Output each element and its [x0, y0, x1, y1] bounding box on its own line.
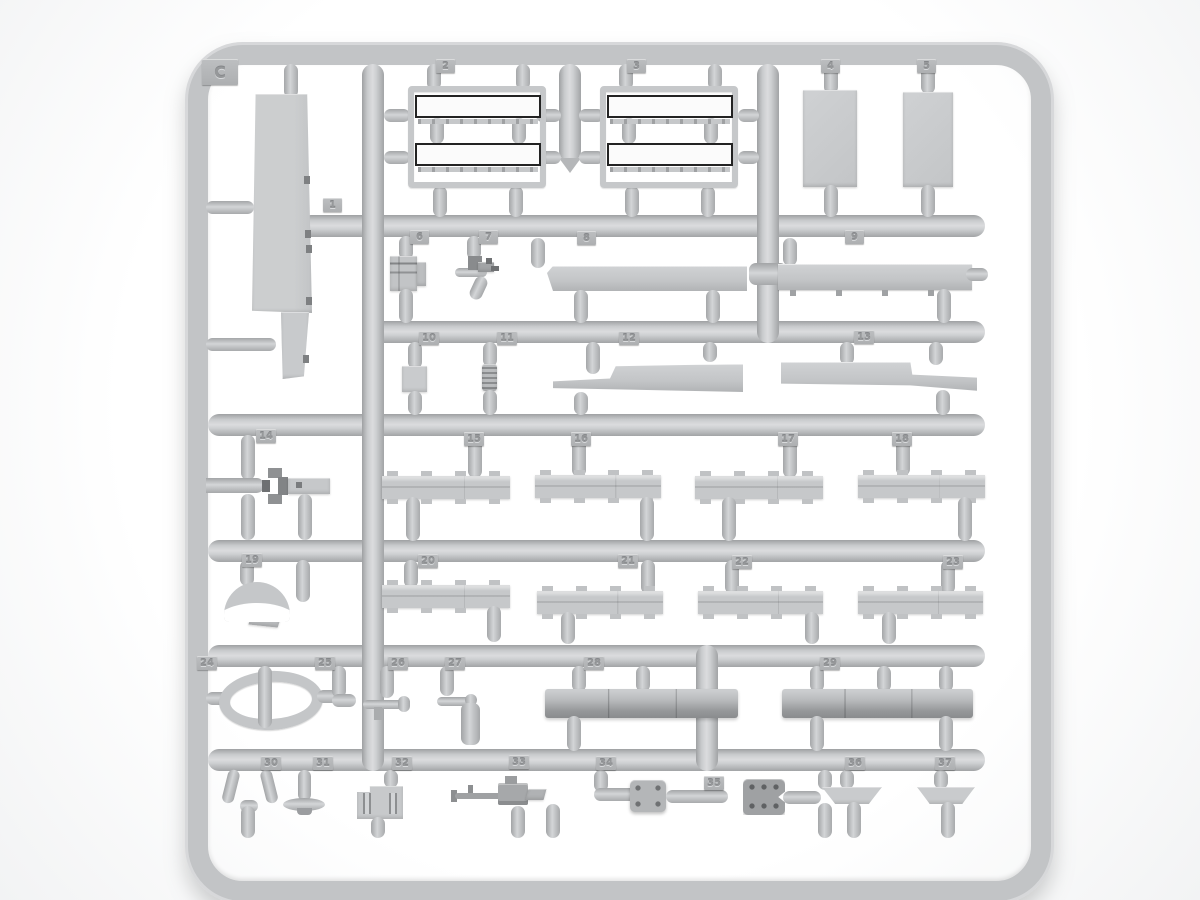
sprue-gate — [818, 803, 832, 838]
part-tag-13: 13 — [854, 330, 874, 344]
part-27-cylinder — [461, 703, 480, 745]
sprue-gate — [406, 497, 420, 541]
sprue-gate — [546, 804, 560, 838]
part-11 — [482, 364, 497, 391]
part-tag-27: 27 — [445, 656, 465, 670]
part-33-top-detail — [505, 776, 517, 784]
sprue-gate — [840, 342, 854, 365]
part-tag-3: 3 — [627, 59, 646, 73]
part-3-bar — [607, 143, 733, 166]
part-tag-22: 22 — [732, 555, 752, 569]
part-34 — [630, 780, 666, 812]
sprue-gate — [738, 109, 759, 122]
part-14-detail — [296, 482, 302, 488]
part-1-tab — [306, 297, 312, 305]
part-tag-25: 25 — [315, 656, 335, 670]
sprue-gate — [840, 770, 854, 789]
sprue-gate — [241, 435, 255, 480]
sprue-gate — [433, 186, 447, 217]
part-tag-18: 18 — [892, 432, 912, 446]
sprue-gate — [206, 201, 254, 214]
sprue-gate — [934, 770, 948, 789]
runner-v-main — [362, 64, 384, 771]
sprue-gate — [561, 612, 575, 644]
sprue-gate — [298, 494, 312, 540]
runner-h-b — [362, 321, 985, 343]
part-31-stem — [298, 770, 311, 801]
part-18 — [858, 475, 985, 498]
sprue-gate — [487, 606, 501, 642]
part-tag-26: 26 — [388, 656, 408, 670]
part-6 — [390, 256, 417, 291]
part-1-tab — [303, 355, 309, 363]
part-33-receiver — [498, 783, 528, 805]
sprue-gate — [399, 289, 413, 323]
runner-h-c — [208, 414, 985, 436]
sprue-gate — [380, 666, 394, 698]
part-4 — [803, 90, 857, 187]
part-tag-11: 11 — [497, 331, 517, 345]
sprue-gate — [966, 268, 988, 281]
part-34-rod — [666, 790, 728, 803]
part-2-bar — [415, 143, 541, 166]
part-tag-33: 33 — [509, 755, 529, 769]
part-28 — [545, 689, 738, 718]
part-tag-2: 2 — [436, 59, 455, 73]
part-3-bar — [607, 95, 733, 118]
part-tag-36: 36 — [845, 756, 865, 770]
part-7-detail — [486, 258, 492, 264]
runner-v-topmid-tip — [559, 158, 581, 173]
part-1 — [252, 94, 312, 313]
part-tag-1: 1 — [323, 198, 342, 212]
sprue-gate — [824, 185, 838, 217]
sprue-gate — [241, 806, 255, 838]
sprue-gate — [408, 342, 422, 369]
part-tag-28: 28 — [584, 656, 604, 670]
part-5 — [903, 92, 953, 187]
sprue-gate — [706, 290, 720, 323]
part-1-tab — [306, 245, 312, 253]
part-tag-30: 30 — [261, 756, 281, 770]
sprue-gate — [206, 338, 276, 351]
sprue-gate — [586, 342, 600, 374]
sprue-gate — [371, 817, 385, 838]
part-tag-9: 9 — [845, 230, 864, 244]
part-tag-32: 32 — [392, 756, 412, 770]
part-31-hub — [297, 808, 312, 815]
part-tag-14: 14 — [256, 429, 276, 443]
part-14-fin-bottom — [268, 494, 282, 504]
part-1-tab — [305, 230, 311, 238]
sprue-gate — [483, 390, 497, 415]
part-33-barrel — [455, 793, 501, 799]
sprue-gate — [509, 186, 523, 217]
sprue-gate — [701, 186, 715, 217]
part-tag-23: 23 — [943, 555, 963, 569]
part-tag-8: 8 — [577, 231, 596, 245]
part-33-stock — [526, 789, 547, 800]
sprue-gate — [921, 185, 935, 217]
sprue-gate — [929, 342, 943, 365]
sprue-gate — [384, 770, 398, 788]
sprue-gate — [722, 497, 736, 541]
sprue-gate — [567, 716, 581, 751]
sprue-gate — [939, 716, 953, 751]
part-tag-19: 19 — [242, 553, 262, 567]
sprue-gate — [384, 109, 410, 122]
runner-h-d — [208, 540, 985, 562]
sprue-gate — [810, 716, 824, 751]
sprue-gate — [408, 391, 422, 415]
part-tag-35: 35 — [704, 776, 724, 790]
part-21 — [537, 591, 663, 614]
part-23 — [858, 591, 983, 614]
sprue-gate — [284, 64, 298, 98]
sprue-gate — [958, 497, 972, 541]
part-1-tab — [304, 176, 310, 184]
part-25 — [332, 694, 356, 707]
part-tag-34: 34 — [596, 756, 616, 770]
part-tag-10: 10 — [419, 331, 439, 345]
part-tag-6: 6 — [410, 230, 429, 244]
part-tag-16: 16 — [571, 432, 591, 446]
part-tag-29: 29 — [820, 656, 840, 670]
part-tag-31: 31 — [313, 756, 333, 770]
part-14-body — [288, 478, 330, 494]
sprue-gate — [384, 151, 410, 164]
part-15 — [382, 476, 510, 499]
part-tag-24: 24 — [197, 656, 217, 670]
part-tag-20: 20 — [418, 554, 438, 568]
part-7-detail — [491, 266, 499, 271]
sprue-gate — [847, 802, 861, 838]
runner-v-topright — [757, 64, 779, 343]
part-17 — [695, 476, 823, 499]
sprue-gate — [783, 238, 797, 266]
sprue-gate — [936, 390, 950, 415]
part-9 — [778, 264, 972, 290]
part-29 — [782, 689, 973, 718]
sprue-gate — [440, 666, 454, 696]
sprue-photo: C 1 2 3 4 5 6 7 8 9 10 11 12 13 14 15 16… — [0, 0, 1200, 900]
sprue-gate — [531, 238, 545, 268]
part-26-leg — [374, 707, 382, 720]
sprue-gate — [882, 612, 896, 644]
part-6-side-plate — [417, 262, 426, 286]
part-tag-12: 12 — [619, 331, 639, 345]
part-14-sight — [262, 480, 270, 492]
sprue-gate — [738, 151, 759, 164]
sprue-gate — [574, 392, 588, 415]
sprue-gate — [574, 290, 588, 323]
part-tag-7: 7 — [479, 230, 498, 244]
sprue-gate — [783, 791, 821, 804]
part-tag-21: 21 — [618, 554, 638, 568]
sprue-gate — [258, 666, 272, 728]
part-10 — [402, 366, 427, 392]
runner-v-topmid — [559, 64, 581, 162]
part-tag-5: 5 — [917, 59, 936, 73]
part-16 — [535, 475, 661, 498]
part-22 — [698, 591, 823, 614]
sprue-gate — [296, 560, 310, 602]
part-33-sight — [468, 785, 473, 793]
part-14-breech — [278, 477, 288, 495]
part-14-muzzle — [206, 478, 264, 493]
sprue-letter-plate: C — [202, 59, 238, 85]
part-tag-37: 37 — [935, 756, 955, 770]
sprue-gate — [625, 186, 639, 217]
part-tag-17: 17 — [778, 432, 798, 446]
sprue-gate — [805, 612, 819, 644]
sprue-gate — [241, 494, 255, 540]
sprue-gate — [941, 802, 955, 838]
sprue-gate — [703, 342, 717, 362]
part-26-plug — [398, 696, 410, 712]
part-8 — [547, 266, 747, 291]
sprue-gate — [511, 806, 525, 838]
sprue-gate — [640, 497, 654, 541]
runner-h-a — [300, 215, 985, 237]
part-tag-15: 15 — [464, 432, 484, 446]
sprue-gate — [937, 289, 951, 323]
part-tag-4: 4 — [821, 59, 840, 73]
part-20 — [382, 585, 510, 608]
part-2-bar — [415, 95, 541, 118]
